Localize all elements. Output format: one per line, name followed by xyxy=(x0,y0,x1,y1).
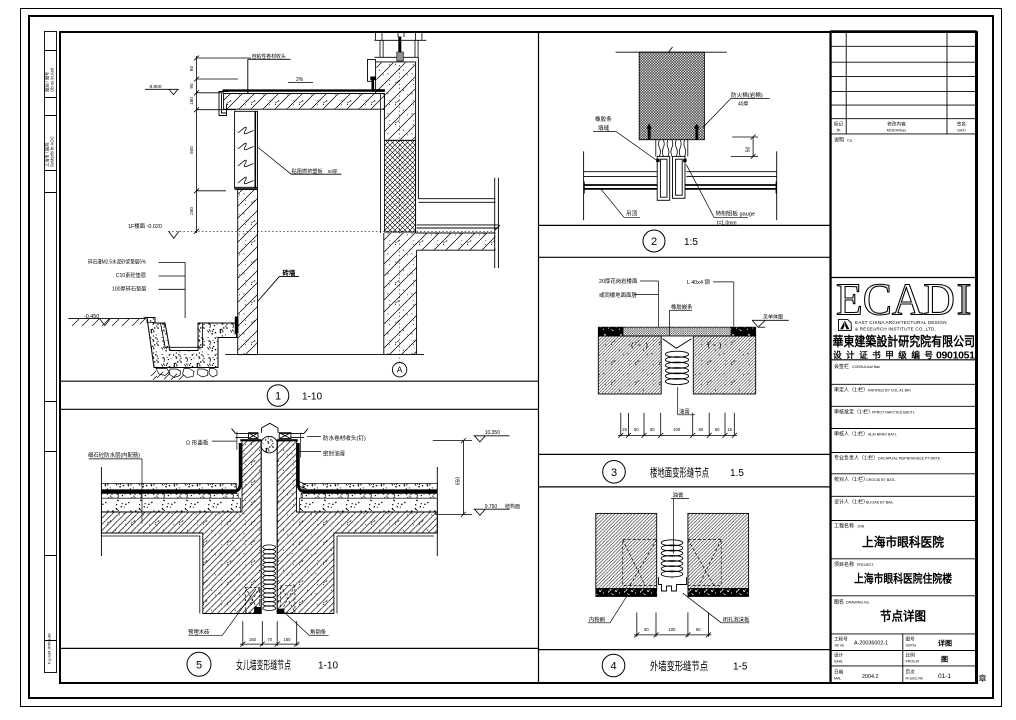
svg-text:图: 图 xyxy=(941,655,948,664)
svg-text:详图: 详图 xyxy=(938,639,952,648)
svg-text:节点详图: 节点详图 xyxy=(880,609,926,624)
svg-text:90: 90 xyxy=(189,83,194,89)
svg-text:CROCID BT BATL: CROCID BT BATL xyxy=(866,478,895,482)
svg-text:60: 60 xyxy=(644,627,649,632)
svg-text:1-10: 1-10 xyxy=(302,392,322,403)
svg-text:SIdTIa: SIdTIa xyxy=(906,644,917,648)
svg-text:t=1.0mm: t=1.0mm xyxy=(717,221,737,227)
svg-text:审定人（1:栏）: 审定人（1:栏） xyxy=(834,387,868,394)
svg-text:JOB: JOB xyxy=(857,525,865,529)
svg-text:50: 50 xyxy=(715,427,720,432)
svg-text:比例: 比例 xyxy=(906,652,916,659)
svg-text:& RESEARCH INSTITUTE CO.,LTD.: & RESEARCH INSTITUTE CO.,LTD. xyxy=(855,327,936,332)
svg-text:In: In xyxy=(837,128,841,133)
svg-text:MODIFIhas: MODIFIhas xyxy=(887,129,907,133)
svg-text:校对人（1:栏）: 校对人（1:栏） xyxy=(834,476,868,483)
svg-text:1:5: 1:5 xyxy=(684,237,698,248)
svg-text:PROruR: PROruR xyxy=(906,660,920,664)
svg-text:预埋木砖: 预埋木砖 xyxy=(188,628,210,636)
svg-text:100厚碎石垫层: 100厚碎石垫层 xyxy=(112,284,147,292)
svg-text:150: 150 xyxy=(284,637,292,642)
svg-text:Ca.: Ca. xyxy=(847,139,853,143)
svg-text:专业负责人（1:栏）: 专业负责人（1:栏） xyxy=(834,455,878,462)
svg-text:ECAD: ECAD xyxy=(836,275,955,325)
svg-text:页次: 页次 xyxy=(906,669,916,676)
svg-text:修改内容: 修改内容 xyxy=(887,121,906,128)
svg-text:20厚花岗岩楼面: 20厚花岗岩楼面 xyxy=(599,277,638,285)
svg-text:PROJECT: PROJECT xyxy=(857,563,875,567)
svg-text:DACAPLIAL PEIPBOAOBLE PT BNTE: DACAPLIAL PEIPBOAOBLE PT BNTE xyxy=(878,457,941,461)
svg-text:50: 50 xyxy=(746,147,752,153)
svg-text:说明: 说明 xyxy=(834,137,844,144)
svg-text:2004.2: 2004.2 xyxy=(862,674,879,680)
svg-text:角钢条: 角钢条 xyxy=(310,628,327,636)
svg-text:SsMsHb br AOC: SsMsHb br AOC xyxy=(50,136,55,167)
svg-text:特制铝板 gauge: 特制铝板 gauge xyxy=(716,210,755,218)
svg-text:M-arcC.Nb: M-arcC.Nb xyxy=(906,677,923,681)
svg-text:填缝: 填缝 xyxy=(598,124,610,132)
svg-text:或同楼地面面层: 或同楼地面面层 xyxy=(599,291,637,299)
svg-text:DATl: DATl xyxy=(957,129,965,133)
svg-text:100: 100 xyxy=(673,427,681,432)
svg-text:1F楼面 -0.020: 1F楼面 -0.020 xyxy=(128,222,162,230)
svg-text:Jrb nb: Jrb nb xyxy=(834,644,844,648)
svg-text:审核人（1:栏）: 审核人（1:栏） xyxy=(834,431,868,438)
svg-text:70: 70 xyxy=(267,637,272,642)
svg-text:橡胶嵌条: 橡胶嵌条 xyxy=(671,303,693,311)
svg-text:上海市眼科医院住院楼: 上海市眼科医院住院楼 xyxy=(854,572,952,586)
svg-text:4: 4 xyxy=(610,661,616,673)
svg-text:内粉刷: 内粉刷 xyxy=(589,616,605,624)
svg-text:EAST CHINA ARCHITECTURAL DESIG: EAST CHINA ARCHITECTURAL DESIGN xyxy=(855,320,947,325)
svg-text:楼地面变形缝节点: 楼地面变形缝节点 xyxy=(650,466,709,480)
svg-text:0901051: 0901051 xyxy=(936,349,975,361)
svg-text:3: 3 xyxy=(611,467,617,479)
svg-text:贴阻燃挤塑板: 贴阻燃挤塑板 xyxy=(292,167,324,175)
svg-text:40厚: 40厚 xyxy=(738,102,749,108)
svg-text:DRAWING No.: DRAWING No. xyxy=(846,601,870,605)
svg-text:工程号: 工程号 xyxy=(834,636,848,643)
svg-text:油膏: 油膏 xyxy=(673,491,684,499)
svg-text:01-1: 01-1 xyxy=(938,673,951,680)
svg-text:油膏: 油膏 xyxy=(679,408,690,416)
svg-text:女儿墙变形缝节点: 女儿墙变形缝节点 xyxy=(236,658,291,672)
svg-text:密封油膏: 密封油膏 xyxy=(323,450,346,458)
svg-text:标记: 标记 xyxy=(834,121,844,128)
svg-text:审核批定（1:栏）: 审核批定（1:栏） xyxy=(834,409,873,416)
svg-text:180: 180 xyxy=(189,97,194,105)
svg-text:见单体图: 见单体图 xyxy=(763,314,783,321)
svg-text:15: 15 xyxy=(727,427,732,432)
svg-text:5: 5 xyxy=(196,660,202,672)
svg-text:500: 500 xyxy=(189,146,194,154)
svg-text:签名: 签名 xyxy=(957,121,966,128)
svg-text:1: 1 xyxy=(275,391,281,403)
svg-text:A-20036002-1: A-20036002-1 xyxy=(854,641,888,647)
svg-text:250: 250 xyxy=(189,207,194,215)
svg-text:外墙变形缝节点: 外墙变形缝节点 xyxy=(650,659,708,673)
svg-text:自粘性卷材收头: 自粘性卷材收头 xyxy=(252,53,286,60)
svg-text:项目名称: 项目名称 xyxy=(834,561,854,568)
svg-text:工程名称: 工程名称 xyxy=(834,523,854,530)
svg-text:设计人（1:栏）: 设计人（1:栏） xyxy=(834,499,868,506)
svg-text:上海市眼科医院: 上海市眼科医院 xyxy=(862,535,944,550)
svg-text:25: 25 xyxy=(622,427,627,432)
svg-text:PPROT RAFCTED BACTL: PPROT RAFCTED BACTL xyxy=(872,411,915,415)
svg-text:2: 2 xyxy=(651,236,657,248)
svg-text:1-5: 1-5 xyxy=(733,662,748,673)
svg-text:吊顶: 吊顶 xyxy=(626,211,638,218)
svg-text:C10素砼垫层: C10素砼垫层 xyxy=(116,271,146,279)
svg-text:闭孔泡沫板: 闭孔泡沫板 xyxy=(723,616,751,624)
svg-text:60: 60 xyxy=(189,66,194,72)
svg-text:章: 章 xyxy=(979,673,987,683)
svg-text:1.5: 1.5 xyxy=(730,468,744,479)
svg-text:華東建築設計研究院有限公司: 華東建築設計研究院有限公司 xyxy=(833,334,976,349)
svg-text:-0.450: -0.450 xyxy=(84,314,99,320)
svg-text:细石砼防水层(内配筋): 细石砼防水层(内配筋) xyxy=(88,451,140,459)
svg-text:100: 100 xyxy=(668,627,676,632)
svg-text:Ob-ss In.AsII: Ob-ss In.AsII xyxy=(50,68,55,92)
svg-text:CONSULIkal Nak: CONSULIkal Nak xyxy=(852,365,880,369)
svg-text:ALAI BRAO BATL: ALAI BRAO BATL xyxy=(868,433,897,437)
svg-text:50: 50 xyxy=(650,427,655,432)
svg-text:橡胶条: 橡胶条 xyxy=(595,115,612,123)
svg-text:50: 50 xyxy=(699,427,704,432)
svg-text:10.350: 10.350 xyxy=(485,430,501,436)
svg-text:MAL: MAL xyxy=(834,677,841,681)
svg-text:150: 150 xyxy=(249,637,257,642)
svg-text:会签栏: 会签栏 xyxy=(834,363,849,370)
svg-text:防水卷材收头(钉): 防水卷材收头(钉) xyxy=(323,434,366,442)
svg-text:50: 50 xyxy=(634,427,639,432)
svg-text:I: I xyxy=(957,275,972,325)
svg-text:650: 650 xyxy=(456,477,462,486)
svg-text:60: 60 xyxy=(696,627,701,632)
svg-text:RATIFIED BY COL.A1 BRI: RATIFIED BY COL.A1 BRI xyxy=(868,389,911,393)
svg-text:设计: 设计 xyxy=(834,652,844,659)
svg-text:图名: 图名 xyxy=(834,599,844,606)
svg-text:砖墙: 砖墙 xyxy=(283,268,296,277)
svg-text:防火棉(岩棉): 防火棉(岩棉) xyxy=(731,91,763,99)
svg-text:碎石灌M2.5水泥砂浆垫层5%: 碎石灌M2.5水泥砂浆垫层5% xyxy=(88,258,146,266)
svg-text:F-g-bJM JPRGLAB: F-g-bJM JPRGLAB xyxy=(48,633,52,664)
svg-text:1-10: 1-10 xyxy=(318,661,338,672)
svg-text:L 40x4 钢: L 40x4 钢 xyxy=(687,278,710,286)
svg-text:BLIOAD BT BAIL: BLIOAD BT BAIL xyxy=(866,501,894,505)
svg-text:SAAL: SAAL xyxy=(834,660,843,664)
svg-text:Ω 形盖板: Ω 形盖板 xyxy=(186,439,209,447)
svg-text:A: A xyxy=(397,365,403,375)
